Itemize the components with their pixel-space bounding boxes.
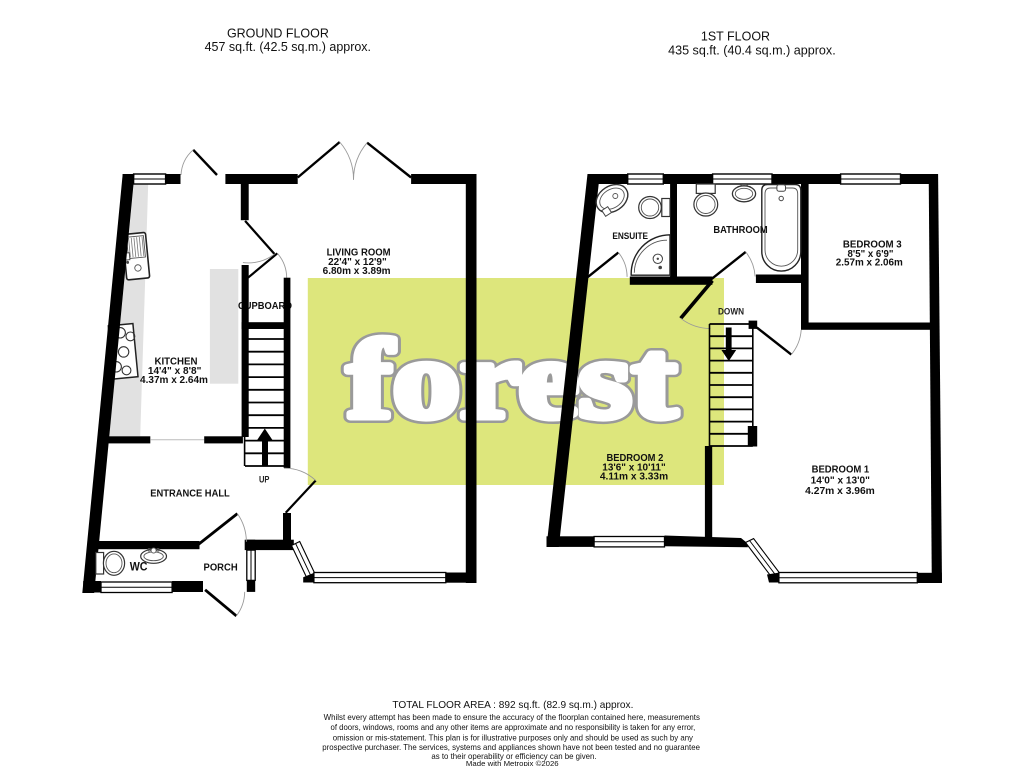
svg-text:2.57m x 2.06m: 2.57m x 2.06m: [836, 258, 903, 269]
svg-text:DOWN: DOWN: [718, 307, 744, 317]
svg-text:WC: WC: [130, 560, 148, 574]
svg-text:BATHROOM: BATHROOM: [713, 225, 767, 236]
svg-text:1ST FLOOR: 1ST FLOOR: [701, 30, 770, 44]
svg-text:BEDROOM 1: BEDROOM 1: [812, 465, 870, 476]
svg-text:4.11m x 3.33m: 4.11m x 3.33m: [600, 472, 668, 483]
svg-text:ENSUITE: ENSUITE: [612, 231, 648, 241]
svg-text:omission or mis-statement. Thi: omission or mis-statement. This plan is …: [333, 732, 694, 742]
svg-text:PORCH: PORCH: [204, 563, 238, 574]
svg-text:of doors, windows, rooms and a: of doors, windows, rooms and any other i…: [331, 722, 696, 732]
svg-text:457 sq.ft. (42.5 sq.m.) approx: 457 sq.ft. (42.5 sq.m.) approx.: [205, 40, 371, 54]
svg-text:forest: forest: [347, 318, 677, 442]
svg-text:UP: UP: [259, 475, 270, 485]
svg-text:435 sq.ft. (40.4 sq.m.) approx: 435 sq.ft. (40.4 sq.m.) approx.: [668, 44, 836, 58]
svg-text:4.37m x 2.64m: 4.37m x 2.64m: [140, 375, 208, 386]
svg-text:6.80m x 3.89m: 6.80m x 3.89m: [323, 266, 391, 277]
svg-text:TOTAL FLOOR AREA : 892 sq.ft.: TOTAL FLOOR AREA : 892 sq.ft. (82.9 sq.m…: [392, 700, 633, 711]
svg-text:Whilst every attempt has been: Whilst every attempt has been made to en…: [324, 712, 700, 722]
svg-text:4.27m x 3.96m: 4.27m x 3.96m: [805, 486, 875, 497]
svg-text:Made with Metropix ©2026: Made with Metropix ©2026: [466, 759, 559, 766]
svg-text:ENTRANCE HALL: ENTRANCE HALL: [150, 489, 230, 500]
svg-text:GROUND FLOOR: GROUND FLOOR: [227, 26, 329, 40]
